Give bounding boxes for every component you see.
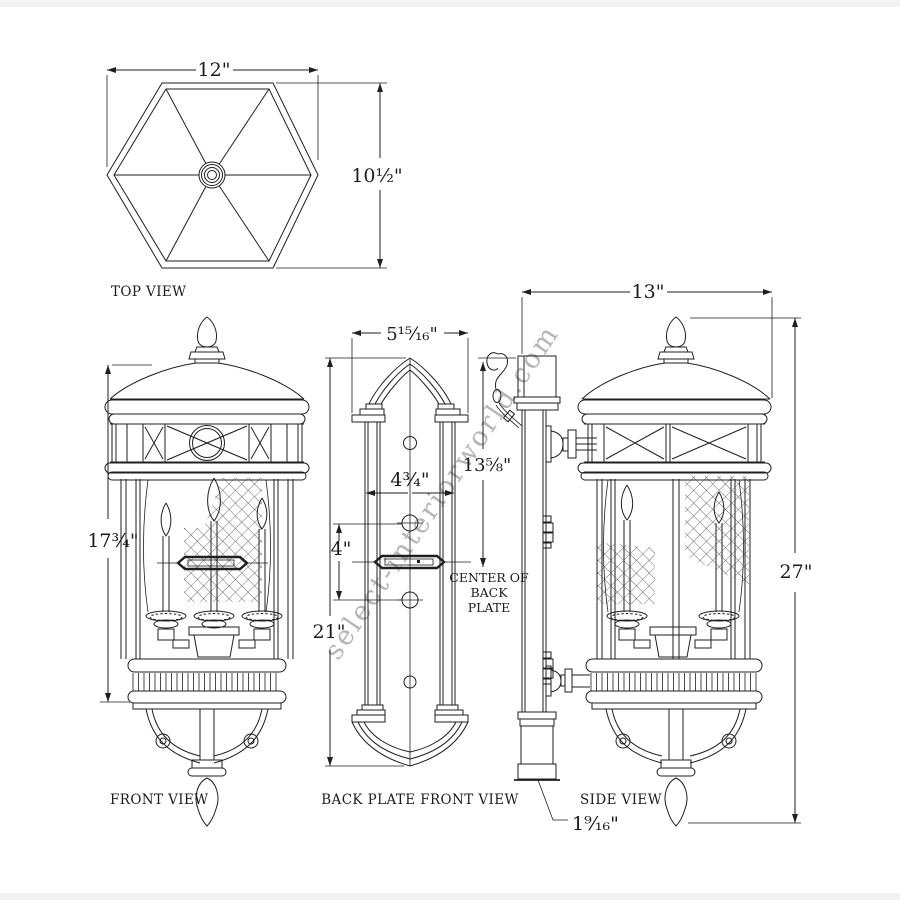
dim-top-width-label: 12" [198,59,231,81]
center-note-line3: PLATE [468,600,511,615]
watermark-text: select-interiorworld.com [318,319,566,665]
front-bobeches [146,611,282,657]
front-finial [189,317,225,363]
dim-side-height-label: 27" [780,561,813,583]
dim-front-height-label: 17¾" [87,530,138,552]
side-lattice-band [578,424,771,480]
dim-plate-inner-width-label: 4¾" [390,469,429,491]
side-wall-plate [514,356,560,780]
side-mount-arms [546,426,597,696]
top-view-finial-rings [199,162,225,188]
dimension-top-width [107,70,318,167]
side-fluted-band [586,659,762,709]
dim-plate-depth-label: 1⁹⁄₁₆" [572,813,619,835]
dim-top-height-label: 10½" [351,165,402,187]
center-note-line1: CENTER OF [449,570,529,585]
side-scroll-base [606,709,746,826]
top-view-drawing [107,70,387,268]
front-roof [105,363,309,424]
front-lattice-band [105,424,309,480]
dim-plate-top-width-label: 5¹⁵⁄₁₆" [386,324,438,345]
dim-top-to-center-label: 13⅝" [463,455,512,476]
dim-hole-spacing-label: 4" [331,538,352,560]
front-view-drawing [100,317,309,826]
front-scroll-base [146,709,268,826]
front-view-caption: FRONT VIEW [110,792,209,808]
side-view-caption: SIDE VIEW [580,792,662,808]
watermark: select-interiorworld.com [318,319,566,665]
back-plate-view-caption: BACK PLATE FRONT VIEW [321,792,519,808]
front-fluted-band [128,659,286,709]
center-note-line2: BACK [470,585,508,600]
side-roof [578,363,771,424]
side-finial [658,317,694,363]
lantern-technical-drawing: select-interiorworld.com [0,0,900,900]
dim-side-width-label: 13" [632,281,665,303]
dim-plate-height-label: 21" [313,621,346,643]
front-seeded-glass-hatch [184,478,262,602]
top-view-caption: TOP VIEW [111,284,186,300]
plate-depth-leader [538,780,568,820]
drawing-page: select-interiorworld.com [0,0,900,900]
